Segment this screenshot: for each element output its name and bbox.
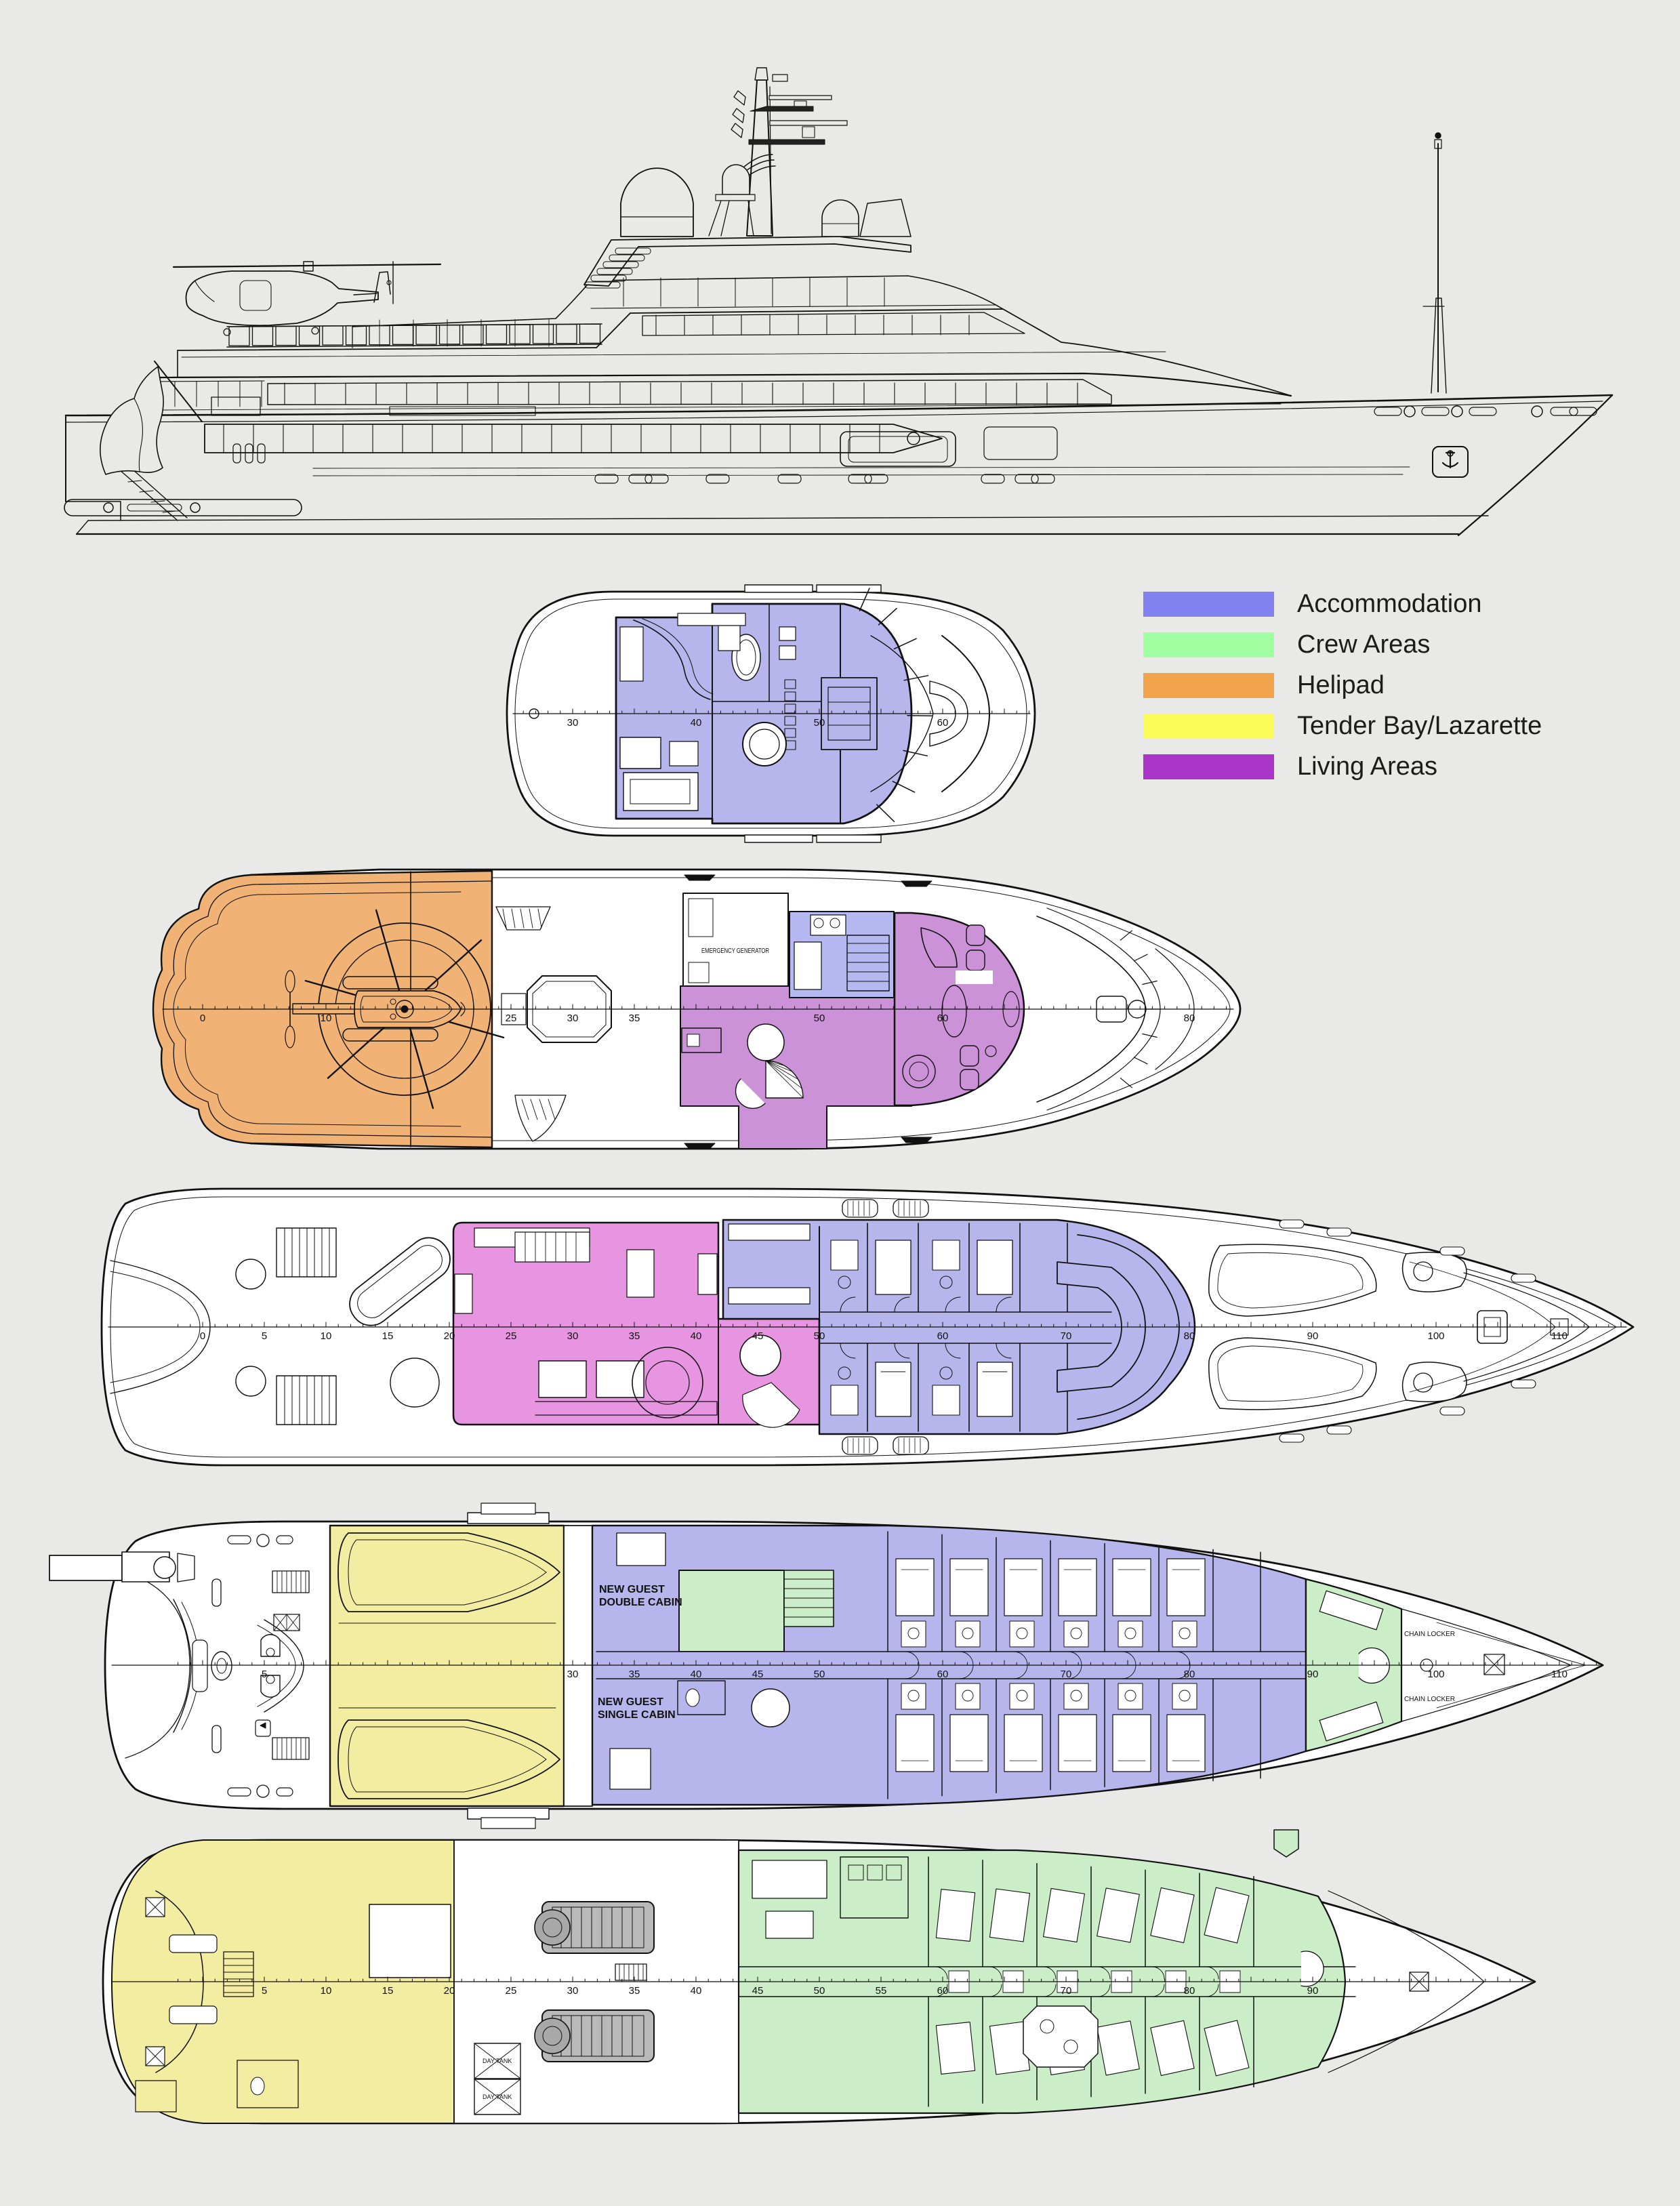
svg-text:60: 60 [937, 1669, 949, 1680]
svg-text:70: 70 [1061, 1330, 1072, 1342]
svg-text:90: 90 [1307, 1985, 1319, 1997]
svg-text:20: 20 [444, 1330, 455, 1342]
svg-text:25: 25 [506, 1330, 517, 1342]
svg-text:90: 90 [1307, 1669, 1319, 1680]
svg-text:Accommodation: Accommodation [1297, 590, 1481, 618]
svg-text:SINGLE CABIN: SINGLE CABIN [598, 1709, 676, 1721]
svg-text:40: 40 [691, 1330, 702, 1342]
svg-text:DOUBLE CABIN: DOUBLE CABIN [599, 1597, 682, 1608]
svg-text:25: 25 [506, 1985, 517, 1997]
svg-text:0: 0 [200, 1330, 205, 1342]
svg-text:80: 80 [1184, 1985, 1195, 1997]
svg-text:80: 80 [1184, 1013, 1195, 1024]
svg-text:15: 15 [382, 1985, 394, 1997]
svg-text:60: 60 [937, 1330, 949, 1342]
svg-text:45: 45 [752, 1330, 764, 1342]
svg-text:60: 60 [937, 1013, 949, 1024]
svg-text:50: 50 [814, 717, 825, 729]
svg-text:70: 70 [1061, 1985, 1072, 1997]
svg-text:Tender Bay/Lazarette: Tender Bay/Lazarette [1297, 712, 1542, 740]
svg-text:EMERGENCY GENERATOR: EMERGENCY GENERATOR [701, 947, 769, 955]
svg-text:35: 35 [629, 1985, 640, 1997]
svg-text:100: 100 [1427, 1669, 1444, 1680]
svg-text:35: 35 [629, 1330, 640, 1342]
svg-text:Crew Areas: Crew Areas [1297, 630, 1430, 659]
svg-text:50: 50 [814, 1330, 825, 1342]
svg-text:110: 110 [1551, 1330, 1568, 1342]
svg-text:40: 40 [691, 717, 702, 729]
svg-text:35: 35 [629, 1669, 640, 1680]
svg-text:60: 60 [937, 1985, 949, 1997]
svg-text:40: 40 [691, 1985, 702, 1997]
svg-text:40: 40 [691, 1669, 702, 1680]
svg-text:NEW GUEST: NEW GUEST [599, 1584, 665, 1595]
svg-text:100: 100 [1427, 1330, 1444, 1342]
svg-text:30: 30 [567, 1669, 579, 1680]
svg-text:Helipad: Helipad [1297, 671, 1385, 699]
svg-text:CHAIN LOCKER: CHAIN LOCKER [1404, 1696, 1455, 1703]
svg-text:35: 35 [629, 1013, 640, 1024]
svg-text:50: 50 [814, 1985, 825, 1997]
svg-text:DAY TANK: DAY TANK [483, 2058, 512, 2064]
svg-text:5: 5 [262, 1330, 267, 1342]
svg-text:5: 5 [262, 1669, 267, 1680]
svg-text:Living Areas: Living Areas [1297, 752, 1437, 781]
svg-text:30: 30 [567, 1985, 579, 1997]
svg-text:10: 10 [321, 1985, 332, 1997]
svg-text:55: 55 [876, 1985, 887, 1997]
svg-text:30: 30 [567, 717, 579, 729]
svg-text:50: 50 [814, 1669, 825, 1680]
svg-text:30: 30 [567, 1013, 579, 1024]
svg-text:15: 15 [382, 1330, 394, 1342]
svg-text:10: 10 [321, 1330, 332, 1342]
svg-text:45: 45 [752, 1985, 764, 1997]
svg-text:80: 80 [1184, 1330, 1195, 1342]
svg-text:DAY TANK: DAY TANK [483, 2093, 512, 2100]
svg-text:30: 30 [567, 1330, 579, 1342]
svg-text:110: 110 [1551, 1669, 1568, 1680]
svg-text:50: 50 [814, 1013, 825, 1024]
svg-text:0: 0 [200, 1013, 205, 1024]
svg-text:45: 45 [752, 1669, 764, 1680]
svg-text:20: 20 [444, 1985, 455, 1997]
svg-text:NEW GUEST: NEW GUEST [598, 1696, 663, 1708]
svg-text:80: 80 [1184, 1669, 1195, 1680]
svg-text:25: 25 [506, 1013, 517, 1024]
svg-text:60: 60 [937, 717, 949, 729]
svg-text:70: 70 [1061, 1669, 1072, 1680]
svg-text:10: 10 [321, 1013, 332, 1024]
svg-text:5: 5 [262, 1985, 267, 1997]
svg-text:CHAIN LOCKER: CHAIN LOCKER [1404, 1631, 1455, 1638]
svg-text:90: 90 [1307, 1330, 1319, 1342]
